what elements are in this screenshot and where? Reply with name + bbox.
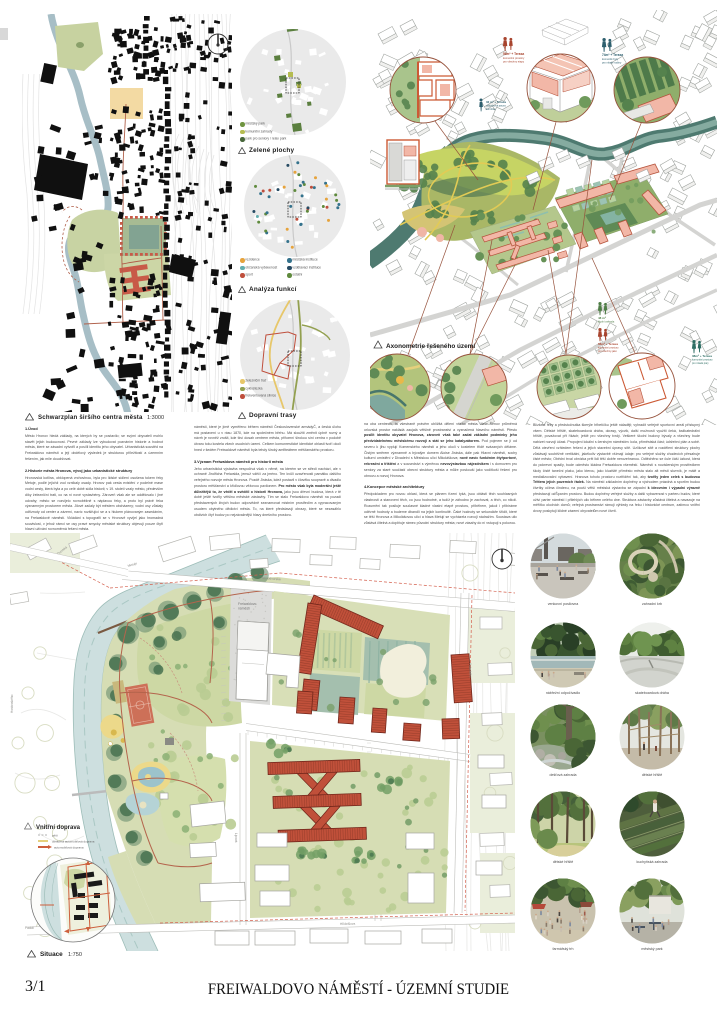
svg-text:74m² + Terasa: 74m² + Terasa — [602, 53, 623, 57]
svg-text:32 m² + Terasa: 32 m² + Terasa — [486, 100, 506, 104]
svg-text:Metuje: Metuje — [127, 561, 138, 568]
svg-text:48 m²: 48 m² — [598, 316, 606, 320]
svg-text:pro mladé páry: pro mladé páry — [692, 362, 709, 365]
svg-text:Axonometrie řešeného území: Axonometrie řešeného území — [386, 343, 475, 350]
svg-text:pro mladé rodiny: pro mladé rodiny — [602, 60, 622, 64]
svg-text:pro všechny jako: pro všechny jako — [598, 350, 617, 353]
svg-text:automobilová doprava: automobilová doprava — [54, 846, 84, 850]
svg-text:38m² + Terasa: 38m² + Terasa — [692, 354, 712, 358]
svg-text:náměstí: náměstí — [238, 607, 250, 611]
svg-text:komunitě byty: komunitě byty — [602, 57, 619, 61]
svg-text:Freiwaldovo: Freiwaldovo — [238, 602, 256, 606]
svg-text:Padolí: Padolí — [25, 926, 34, 930]
svg-text:Vnitřní doprava: Vnitřní doprava — [36, 825, 81, 831]
svg-text:Hřídelšova: Hřídelšova — [340, 922, 356, 926]
svg-text:pěší: pěší — [52, 834, 58, 838]
svg-text:Palackého: Palackého — [468, 663, 473, 678]
svg-text:komunitní prostory: komunitní prostory — [503, 56, 525, 60]
svg-text:Hostovského: Hostovského — [10, 694, 14, 713]
svg-text:školní zahrada: školní zahrada — [598, 321, 615, 324]
svg-text:pro všechny etapy: pro všechny etapy — [503, 59, 525, 63]
svg-text:56m² + Terasa: 56m² + Terasa — [503, 52, 524, 56]
svg-text:kombíka: kombíka — [486, 108, 496, 111]
svg-text:Lipová: Lipová — [234, 833, 238, 843]
svg-text:obslužná automobilová doprava: obslužná automobilová doprava — [52, 840, 95, 844]
svg-text:66m² + Terasa: 66m² + Terasa — [598, 342, 618, 346]
